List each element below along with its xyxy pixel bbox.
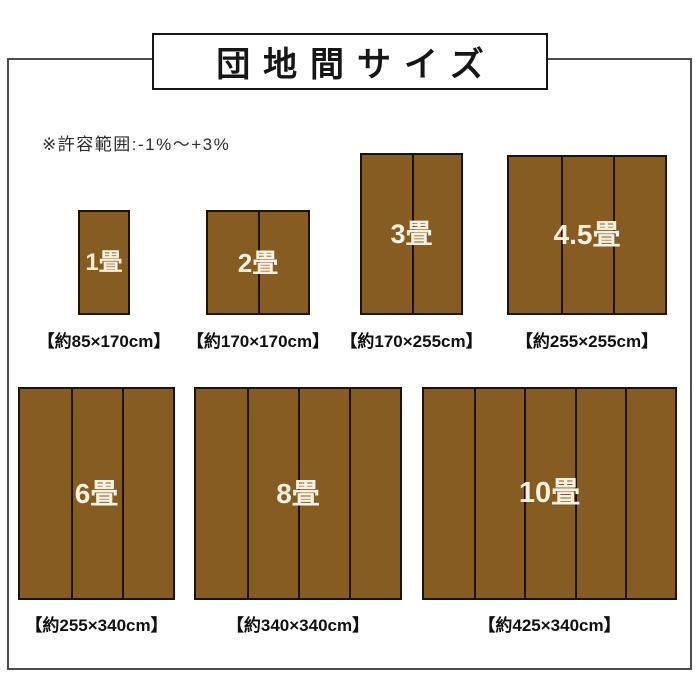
title-banner: 団地間サイズ	[152, 33, 548, 90]
tatami-mat: 10畳	[422, 387, 677, 600]
tatami-mat-label: 6畳	[75, 480, 119, 508]
size-caption: 【約170×170cm】	[187, 327, 329, 352]
panel-divider	[247, 389, 249, 598]
title-text: 団地間サイズ	[216, 37, 497, 86]
panel-divider	[349, 389, 351, 598]
tatami-mat: 2畳	[206, 210, 310, 315]
tatami-mat: 4.5畳	[507, 155, 667, 315]
panel-divider	[71, 389, 73, 598]
size-caption: 【約255×255cm】	[516, 327, 658, 352]
panel-divider	[474, 389, 476, 598]
tatami-mat-label: 1畳	[85, 251, 122, 275]
size-caption: 【約425×340cm】	[478, 611, 620, 636]
panel-divider	[625, 389, 627, 598]
size-caption: 【約340×340cm】	[227, 611, 369, 636]
tatami-mat: 1畳	[78, 210, 130, 315]
tolerance-note: ※許容範囲:-1%〜+3%	[42, 130, 230, 155]
tatami-mat: 6畳	[18, 387, 175, 600]
tatami-mat-label: 2畳	[238, 250, 278, 276]
tatami-mat: 8畳	[194, 387, 402, 600]
size-caption: 【約170×255cm】	[340, 327, 482, 352]
size-caption: 【約255×340cm】	[25, 611, 167, 636]
danchima-size-diagram: 団地間サイズ ※許容範囲:-1%〜+3% 1畳【約85×170cm】2畳【約17…	[0, 0, 700, 700]
panel-divider	[122, 389, 124, 598]
tatami-mat-label: 4.5畳	[554, 221, 621, 249]
tatami-mat-label: 3畳	[390, 221, 432, 248]
tatami-mat: 3畳	[360, 153, 463, 315]
tatami-mat-label: 10畳	[519, 479, 580, 508]
size-caption: 【約85×170cm】	[38, 327, 171, 352]
tatami-mat-label: 8畳	[276, 480, 320, 508]
